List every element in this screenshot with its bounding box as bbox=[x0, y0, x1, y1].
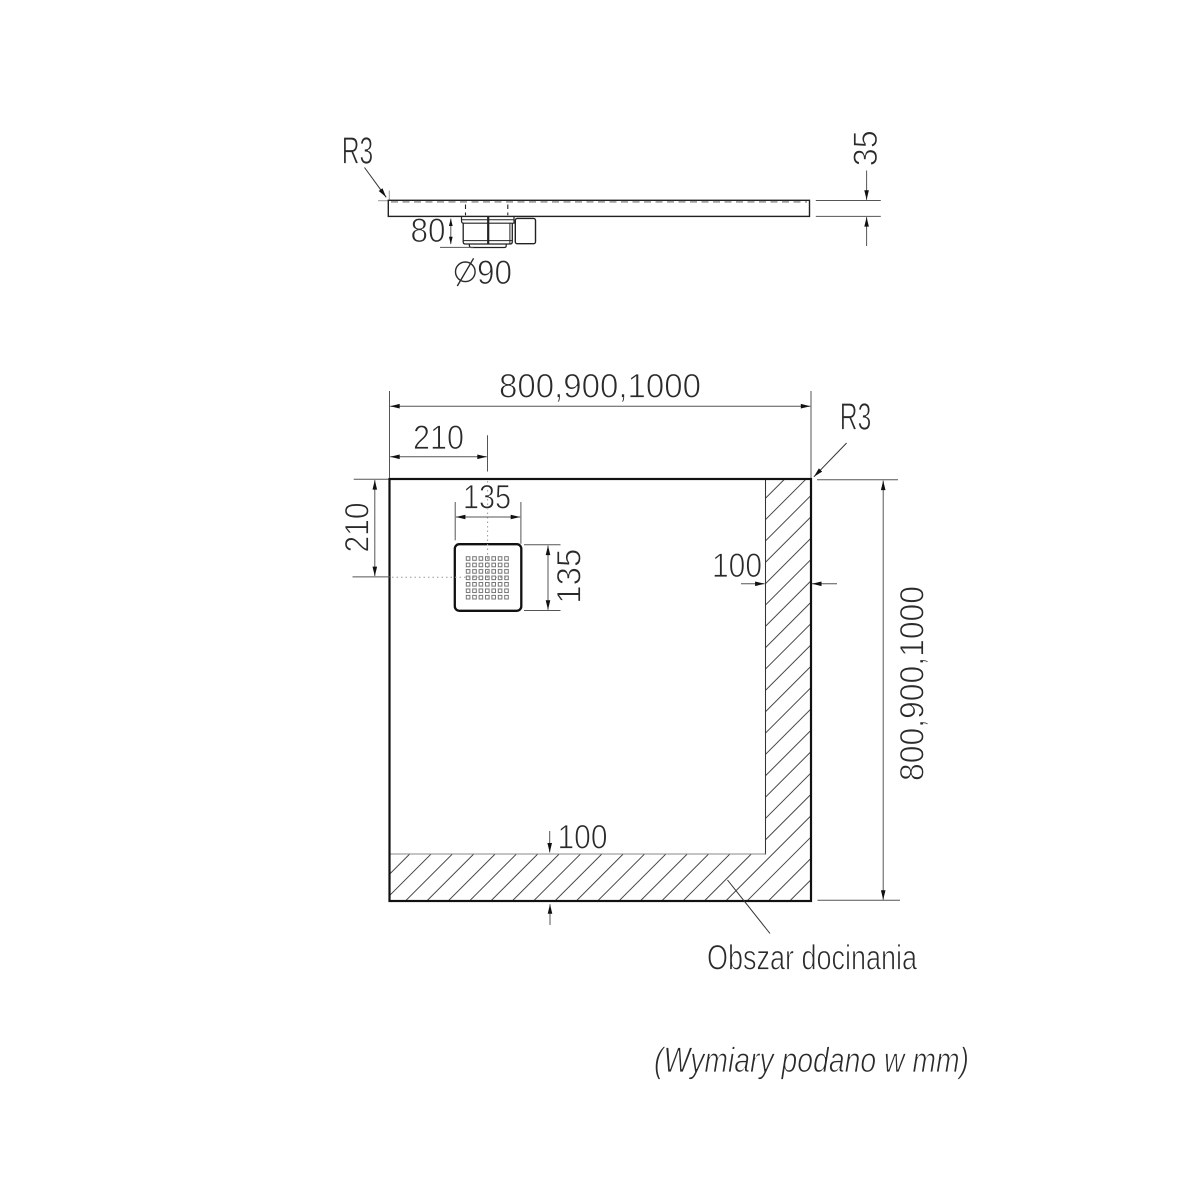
svg-text:90: 90 bbox=[477, 254, 512, 292]
svg-text:(Wymiary podano w mm): (Wymiary podano w mm) bbox=[654, 1041, 969, 1080]
svg-text:800,900,1000: 800,900,1000 bbox=[499, 368, 701, 406]
svg-text:135: 135 bbox=[463, 479, 511, 517]
svg-text:100: 100 bbox=[712, 547, 762, 585]
svg-text:100: 100 bbox=[558, 819, 608, 857]
svg-text:R3: R3 bbox=[342, 130, 374, 172]
svg-text:80: 80 bbox=[411, 212, 446, 250]
svg-text:Obszar docinania: Obszar docinania bbox=[707, 939, 917, 978]
svg-text:R3: R3 bbox=[840, 397, 872, 439]
svg-text:135: 135 bbox=[551, 549, 589, 604]
svg-text:210: 210 bbox=[413, 419, 464, 457]
svg-text:210: 210 bbox=[339, 503, 377, 553]
svg-text:35: 35 bbox=[847, 130, 885, 166]
svg-text:800,900,1000: 800,900,1000 bbox=[894, 586, 932, 781]
